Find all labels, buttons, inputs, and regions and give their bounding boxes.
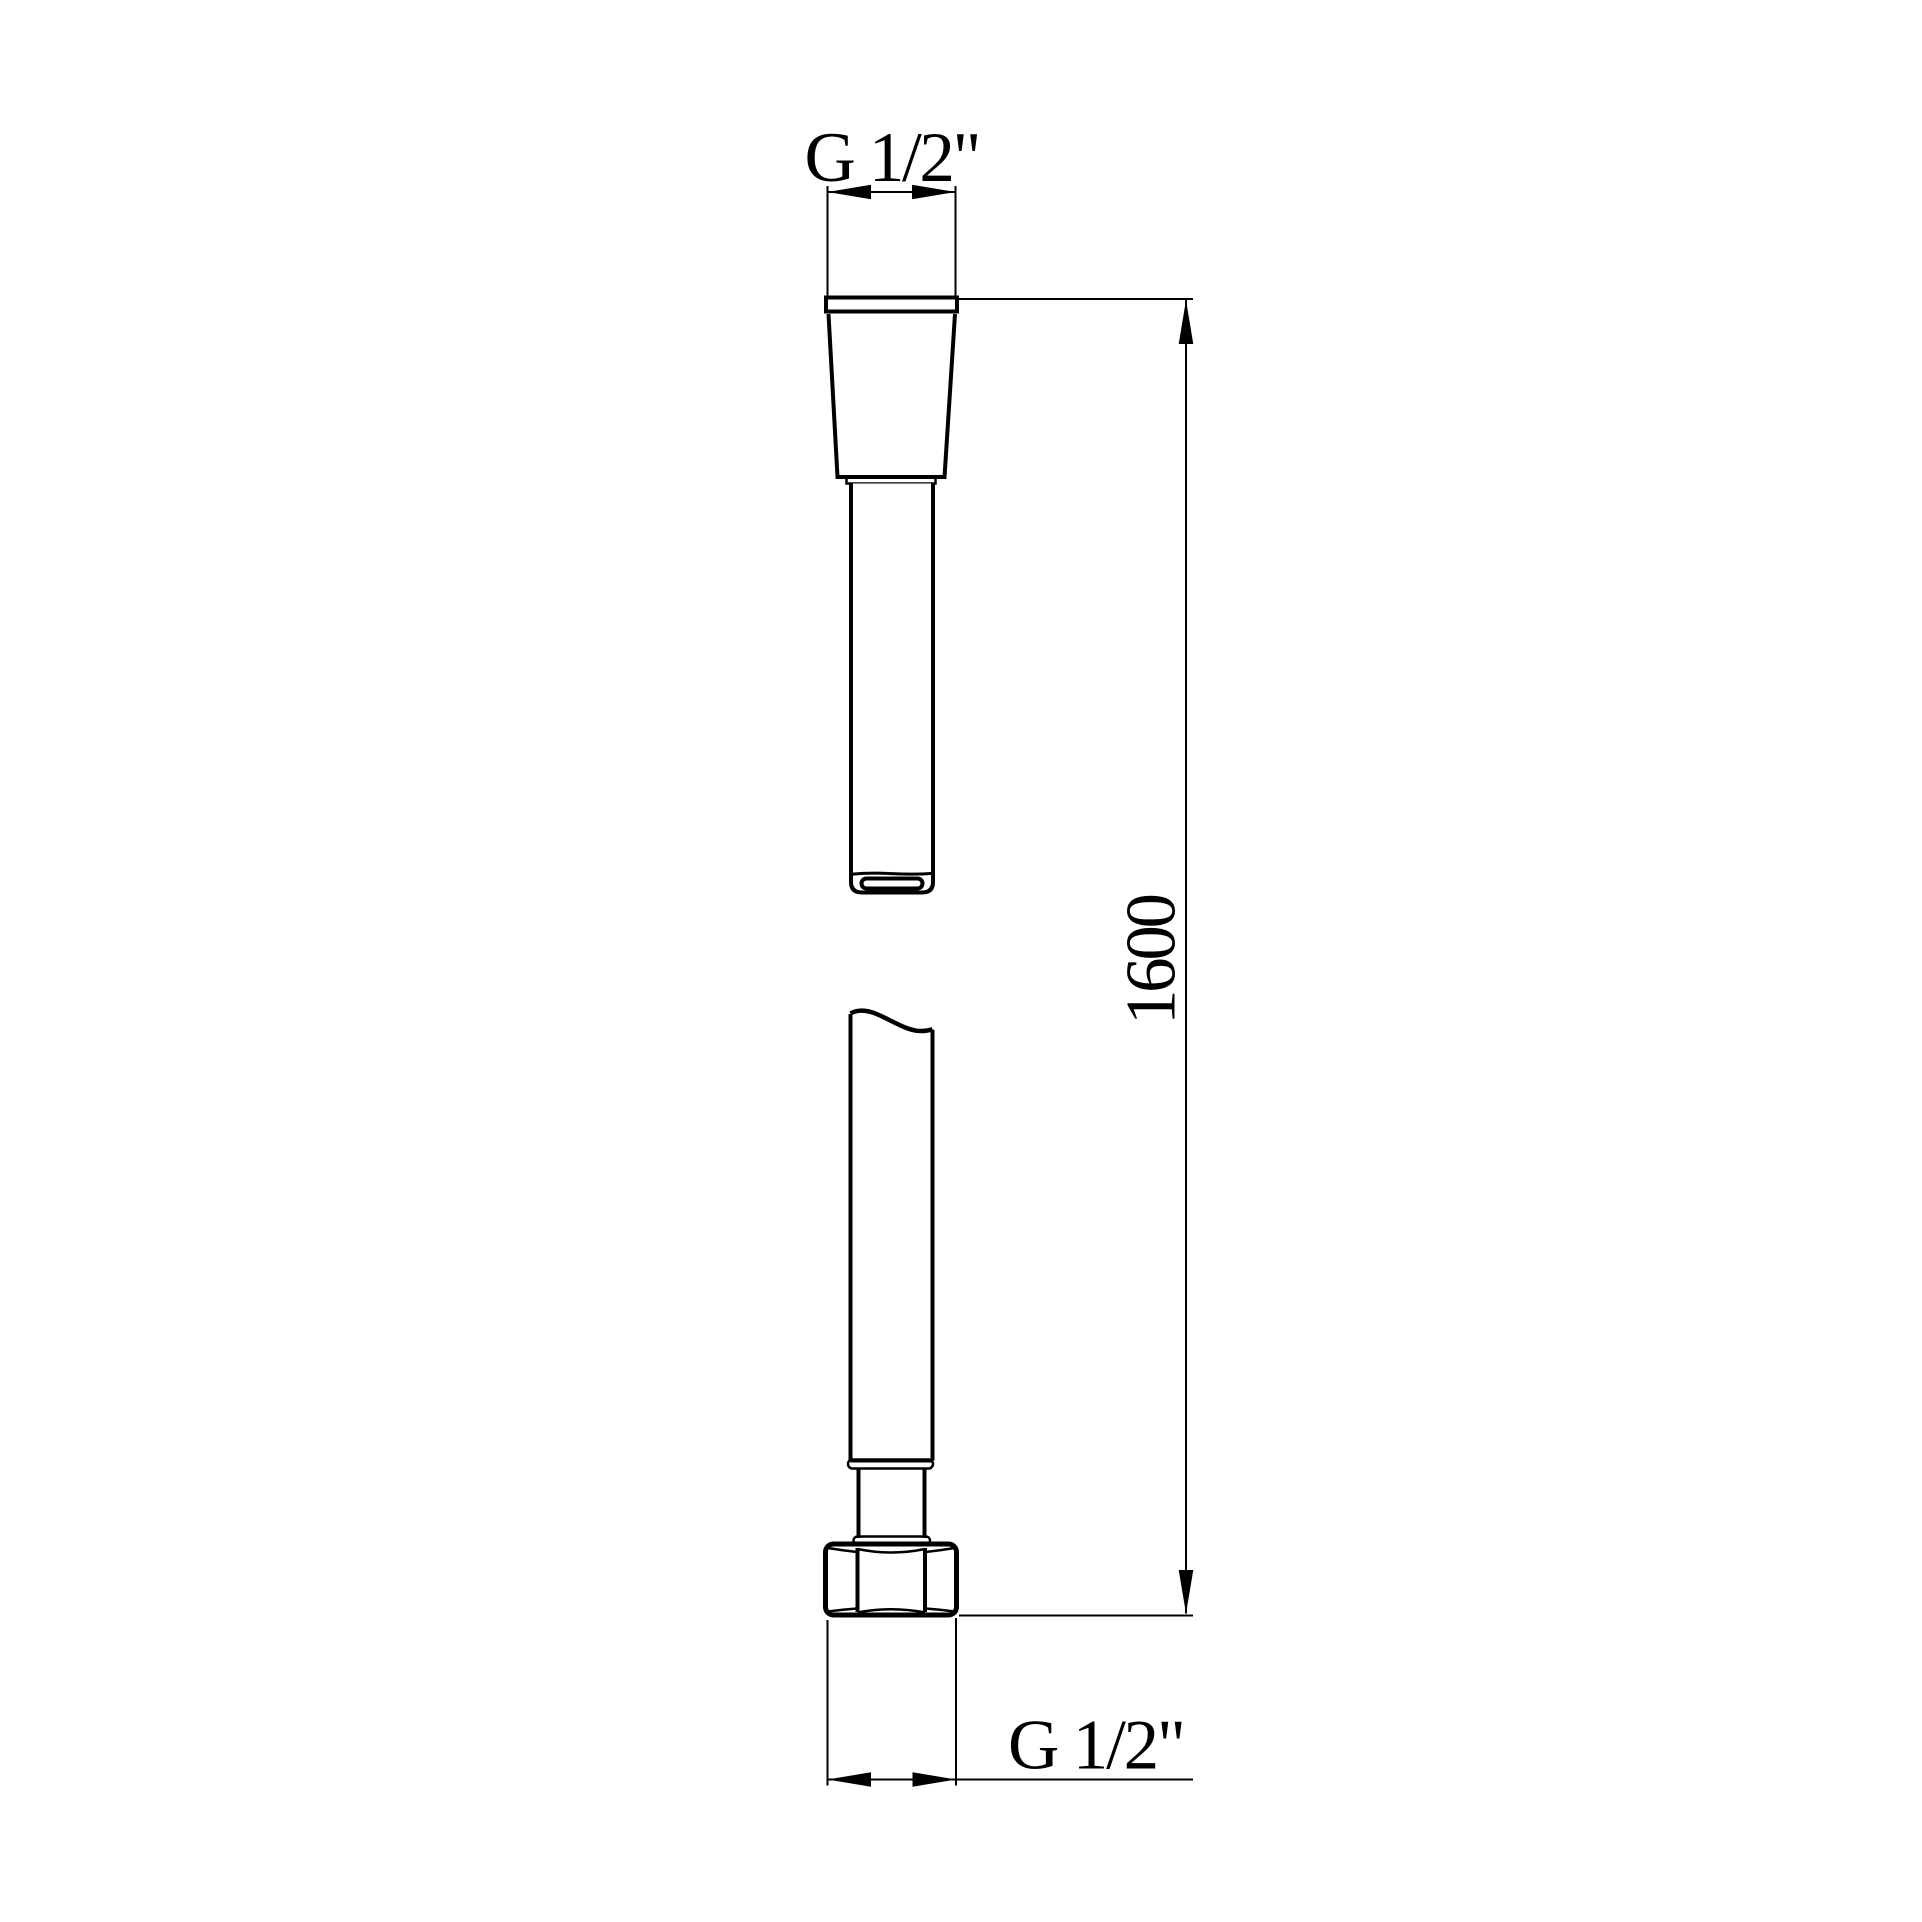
svg-text:G 1/2": G 1/2" (1008, 1707, 1186, 1785)
svg-text:G 1/2": G 1/2" (805, 119, 982, 197)
svg-text:1600: 1600 (1113, 893, 1191, 1025)
